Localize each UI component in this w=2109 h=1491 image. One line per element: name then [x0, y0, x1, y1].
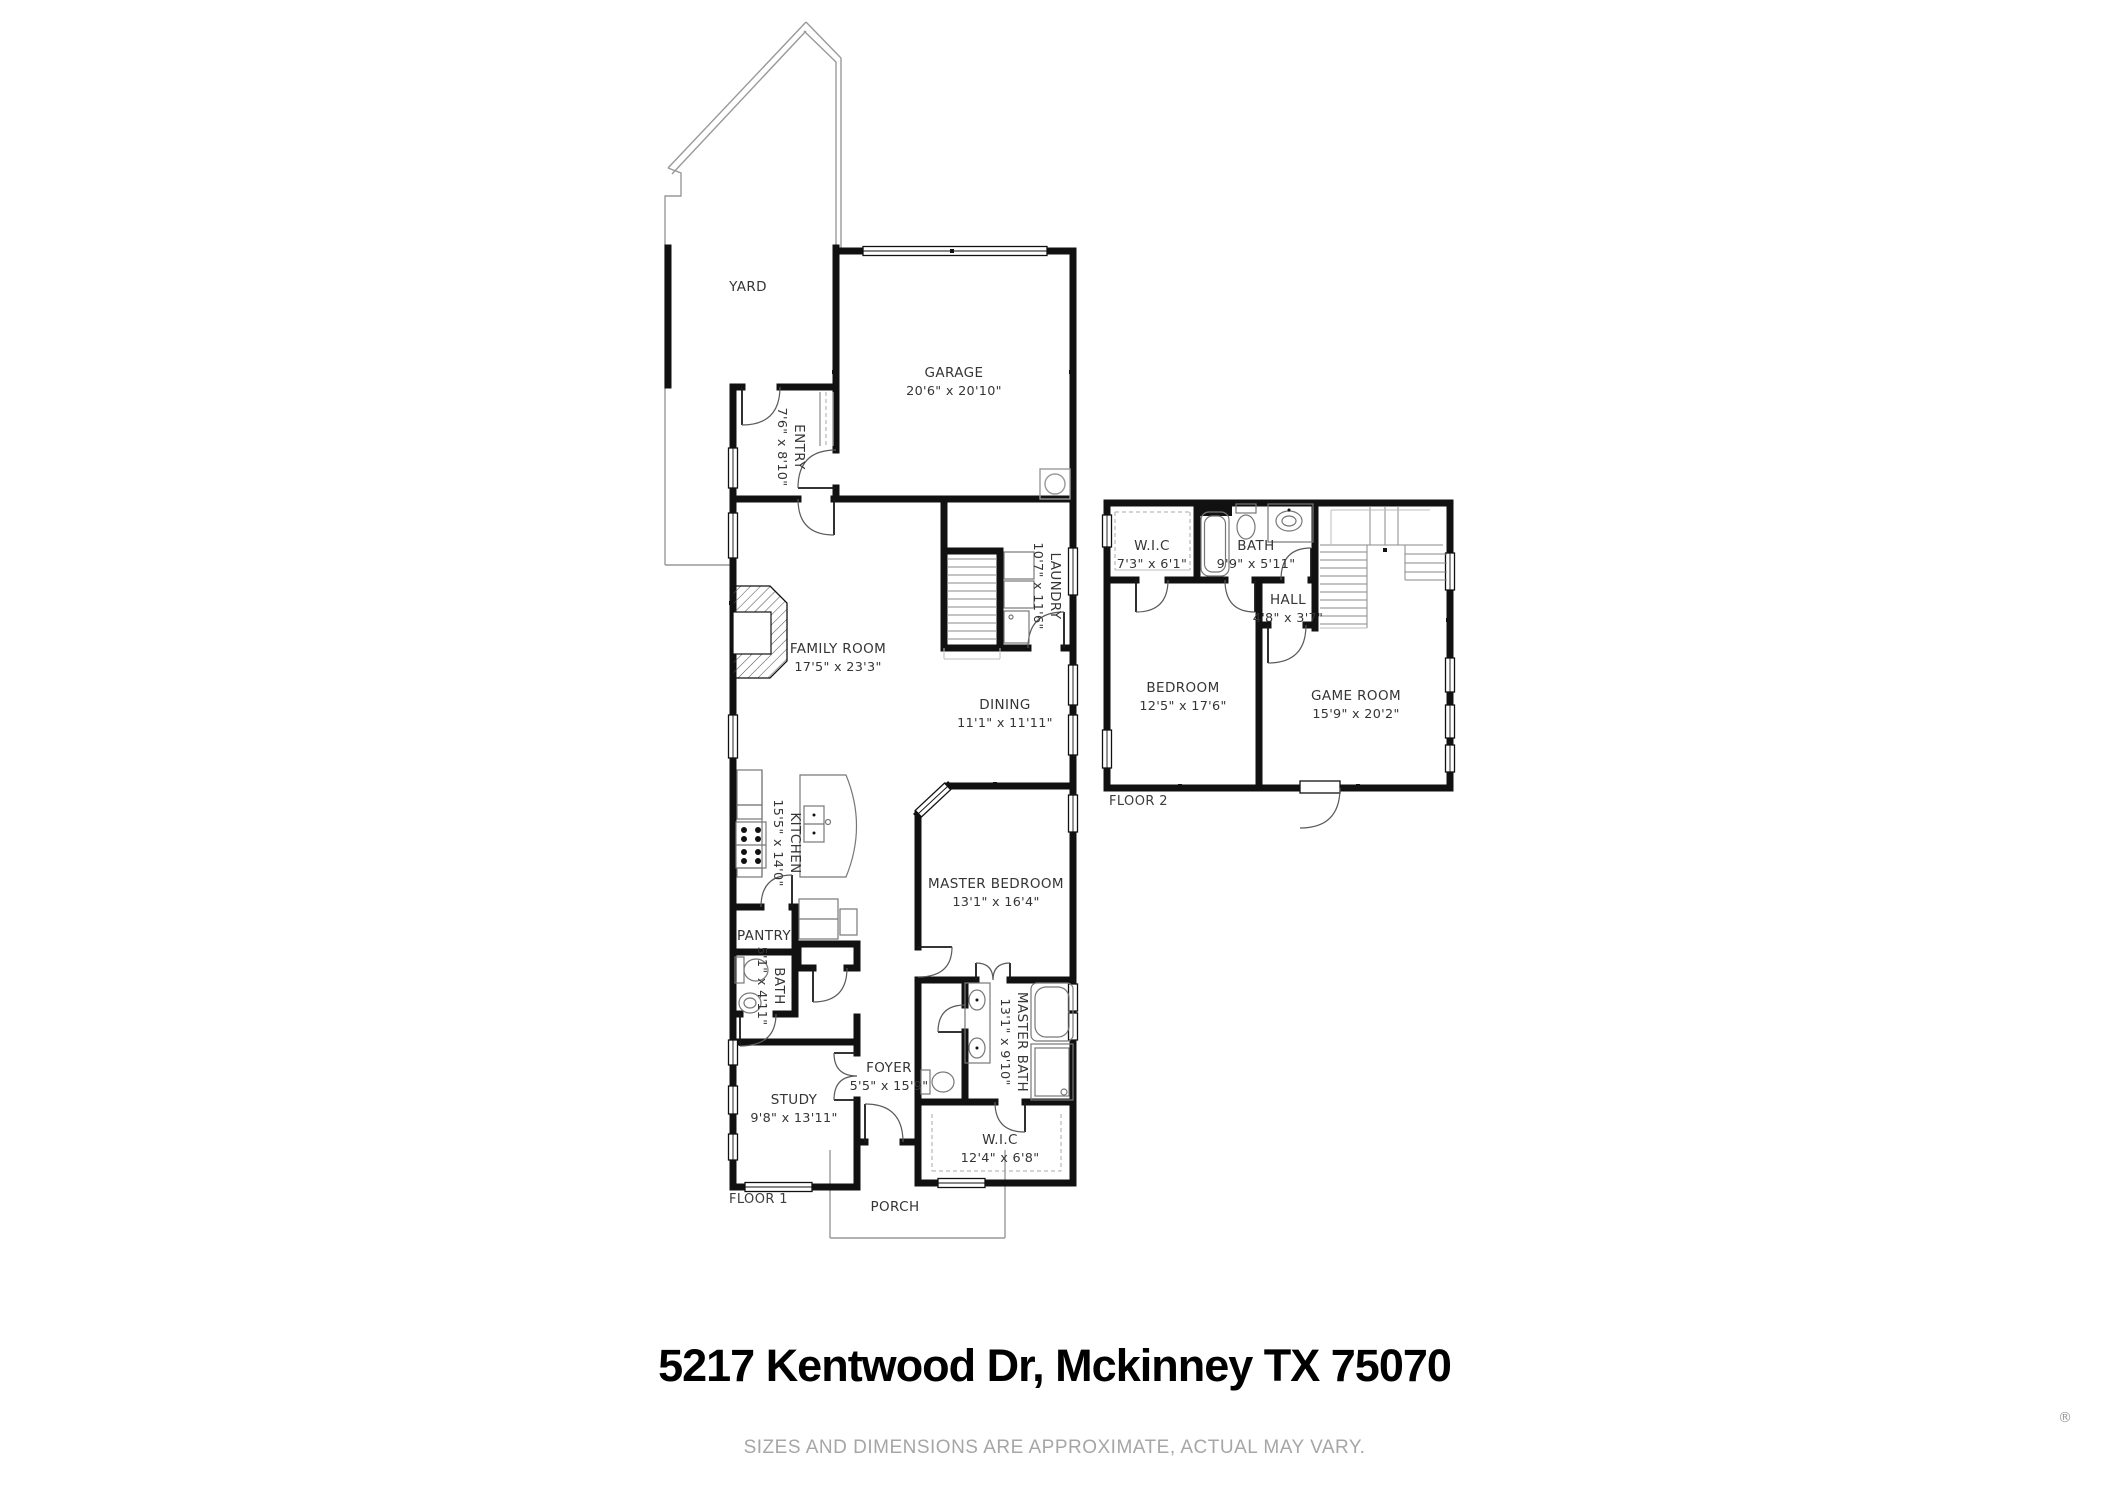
floor2-plan: W.I.C 7'3" x 6'1" BATH 9'9" x 5'11" HALL…: [1103, 501, 1455, 828]
room-dims-master-bath: 13'1" x 9'10": [997, 998, 1012, 1085]
exterior-door-leaf: [1300, 781, 1340, 793]
room-label-foyer: FOYER: [866, 1060, 912, 1076]
room-label-hall: HALL: [1270, 592, 1306, 608]
room-label-pantry: PANTRY: [737, 928, 791, 944]
room-dims-bath2: 9'9" x 5'11": [1217, 557, 1296, 572]
room-dims-wic2: 7'3" x 6'1": [1117, 557, 1187, 572]
room-dims-family-room: 17'5" x 23'3": [794, 660, 881, 675]
floor1-labels: YARD GARAGE 20'6" x 20'10" ENTRY 7'6" x …: [728, 279, 1064, 1215]
room-label-family-room: FAMILY ROOM: [790, 641, 886, 657]
room-label-master-bedroom: MASTER BEDROOM: [928, 876, 1064, 892]
room-dims-entry: 7'6" x 8'10": [774, 408, 789, 487]
room-label-yard: YARD: [728, 279, 767, 295]
room-dims-hall: 4'8" x 3'7": [1253, 611, 1323, 626]
room-label-wic: W.I.C: [982, 1132, 1018, 1148]
registered-mark: ®: [2058, 1410, 2072, 1426]
room-label-wic2: W.I.C: [1134, 538, 1170, 554]
room-dims-bedroom2: 12'5" x 17'6": [1139, 699, 1226, 714]
room-dims-wic: 12'4" x 6'8": [961, 1151, 1040, 1166]
room-dims-study: 9'8" x 13'11": [750, 1111, 837, 1126]
room-label-entry: ENTRY: [791, 424, 807, 470]
floor2-label: FLOOR 2: [1109, 794, 1168, 809]
room-dims-kitchen: 15'5" x 14'0": [770, 799, 785, 886]
floor2-stairs: [1320, 507, 1447, 628]
disclaimer-text: SIZES AND DIMENSIONS ARE APPROXIMATE, AC…: [0, 1437, 2109, 1459]
room-label-bath2: BATH: [1237, 538, 1274, 554]
kitchen-island: [800, 775, 857, 877]
room-label-kitchen: KITCHEN: [787, 812, 803, 873]
window-diagonal: [915, 783, 950, 817]
master-bath-fixtures: [921, 983, 1073, 1100]
floor1-plan: YARD GARAGE 20'6" x 20'10" ENTRY 7'6" x …: [665, 22, 1078, 1238]
room-dims-game-room: 15'9" x 20'2": [1312, 707, 1399, 722]
room-label-master-bath: MASTER BATH: [1014, 992, 1030, 1092]
floor1-stairs: [944, 559, 1000, 659]
room-dims-foyer: 5'5" x 15'9": [850, 1079, 929, 1094]
room-label-bath: BATH: [771, 967, 787, 1004]
room-dims-dining: 11'1" x 11'11": [957, 716, 1053, 731]
room-dims-garage: 20'6" x 20'10": [906, 384, 1002, 399]
floorplan-drawing: YARD GARAGE 20'6" x 20'10" ENTRY 7'6" x …: [0, 0, 2109, 1491]
room-label-game-room: GAME ROOM: [1311, 688, 1401, 704]
room-label-laundry: LAUNDRY: [1047, 552, 1063, 619]
room-label-porch: PORCH: [870, 1199, 919, 1215]
room-label-garage: GARAGE: [925, 365, 984, 381]
room-dims-master-bedroom: 13'1" x 16'4": [952, 895, 1039, 910]
fireplace: [733, 586, 787, 678]
garage-door: [863, 247, 1047, 256]
page-title: 5217 Kentwood Dr, Mckinney TX 75070: [0, 1340, 2109, 1392]
floorplan-page: YARD GARAGE 20'6" x 20'10" ENTRY 7'6" x …: [0, 0, 2109, 1491]
room-dims-laundry: 10'7" x 11'6": [1030, 542, 1045, 629]
room-label-bedroom2: BEDROOM: [1146, 680, 1219, 696]
room-label-dining: DINING: [979, 697, 1030, 713]
floor1-label: FLOOR 1: [729, 1192, 788, 1207]
room-dims-bath: 5'1" x 4'11": [754, 947, 769, 1026]
hall-cubbies: [799, 899, 857, 939]
room-label-study: STUDY: [771, 1092, 818, 1108]
